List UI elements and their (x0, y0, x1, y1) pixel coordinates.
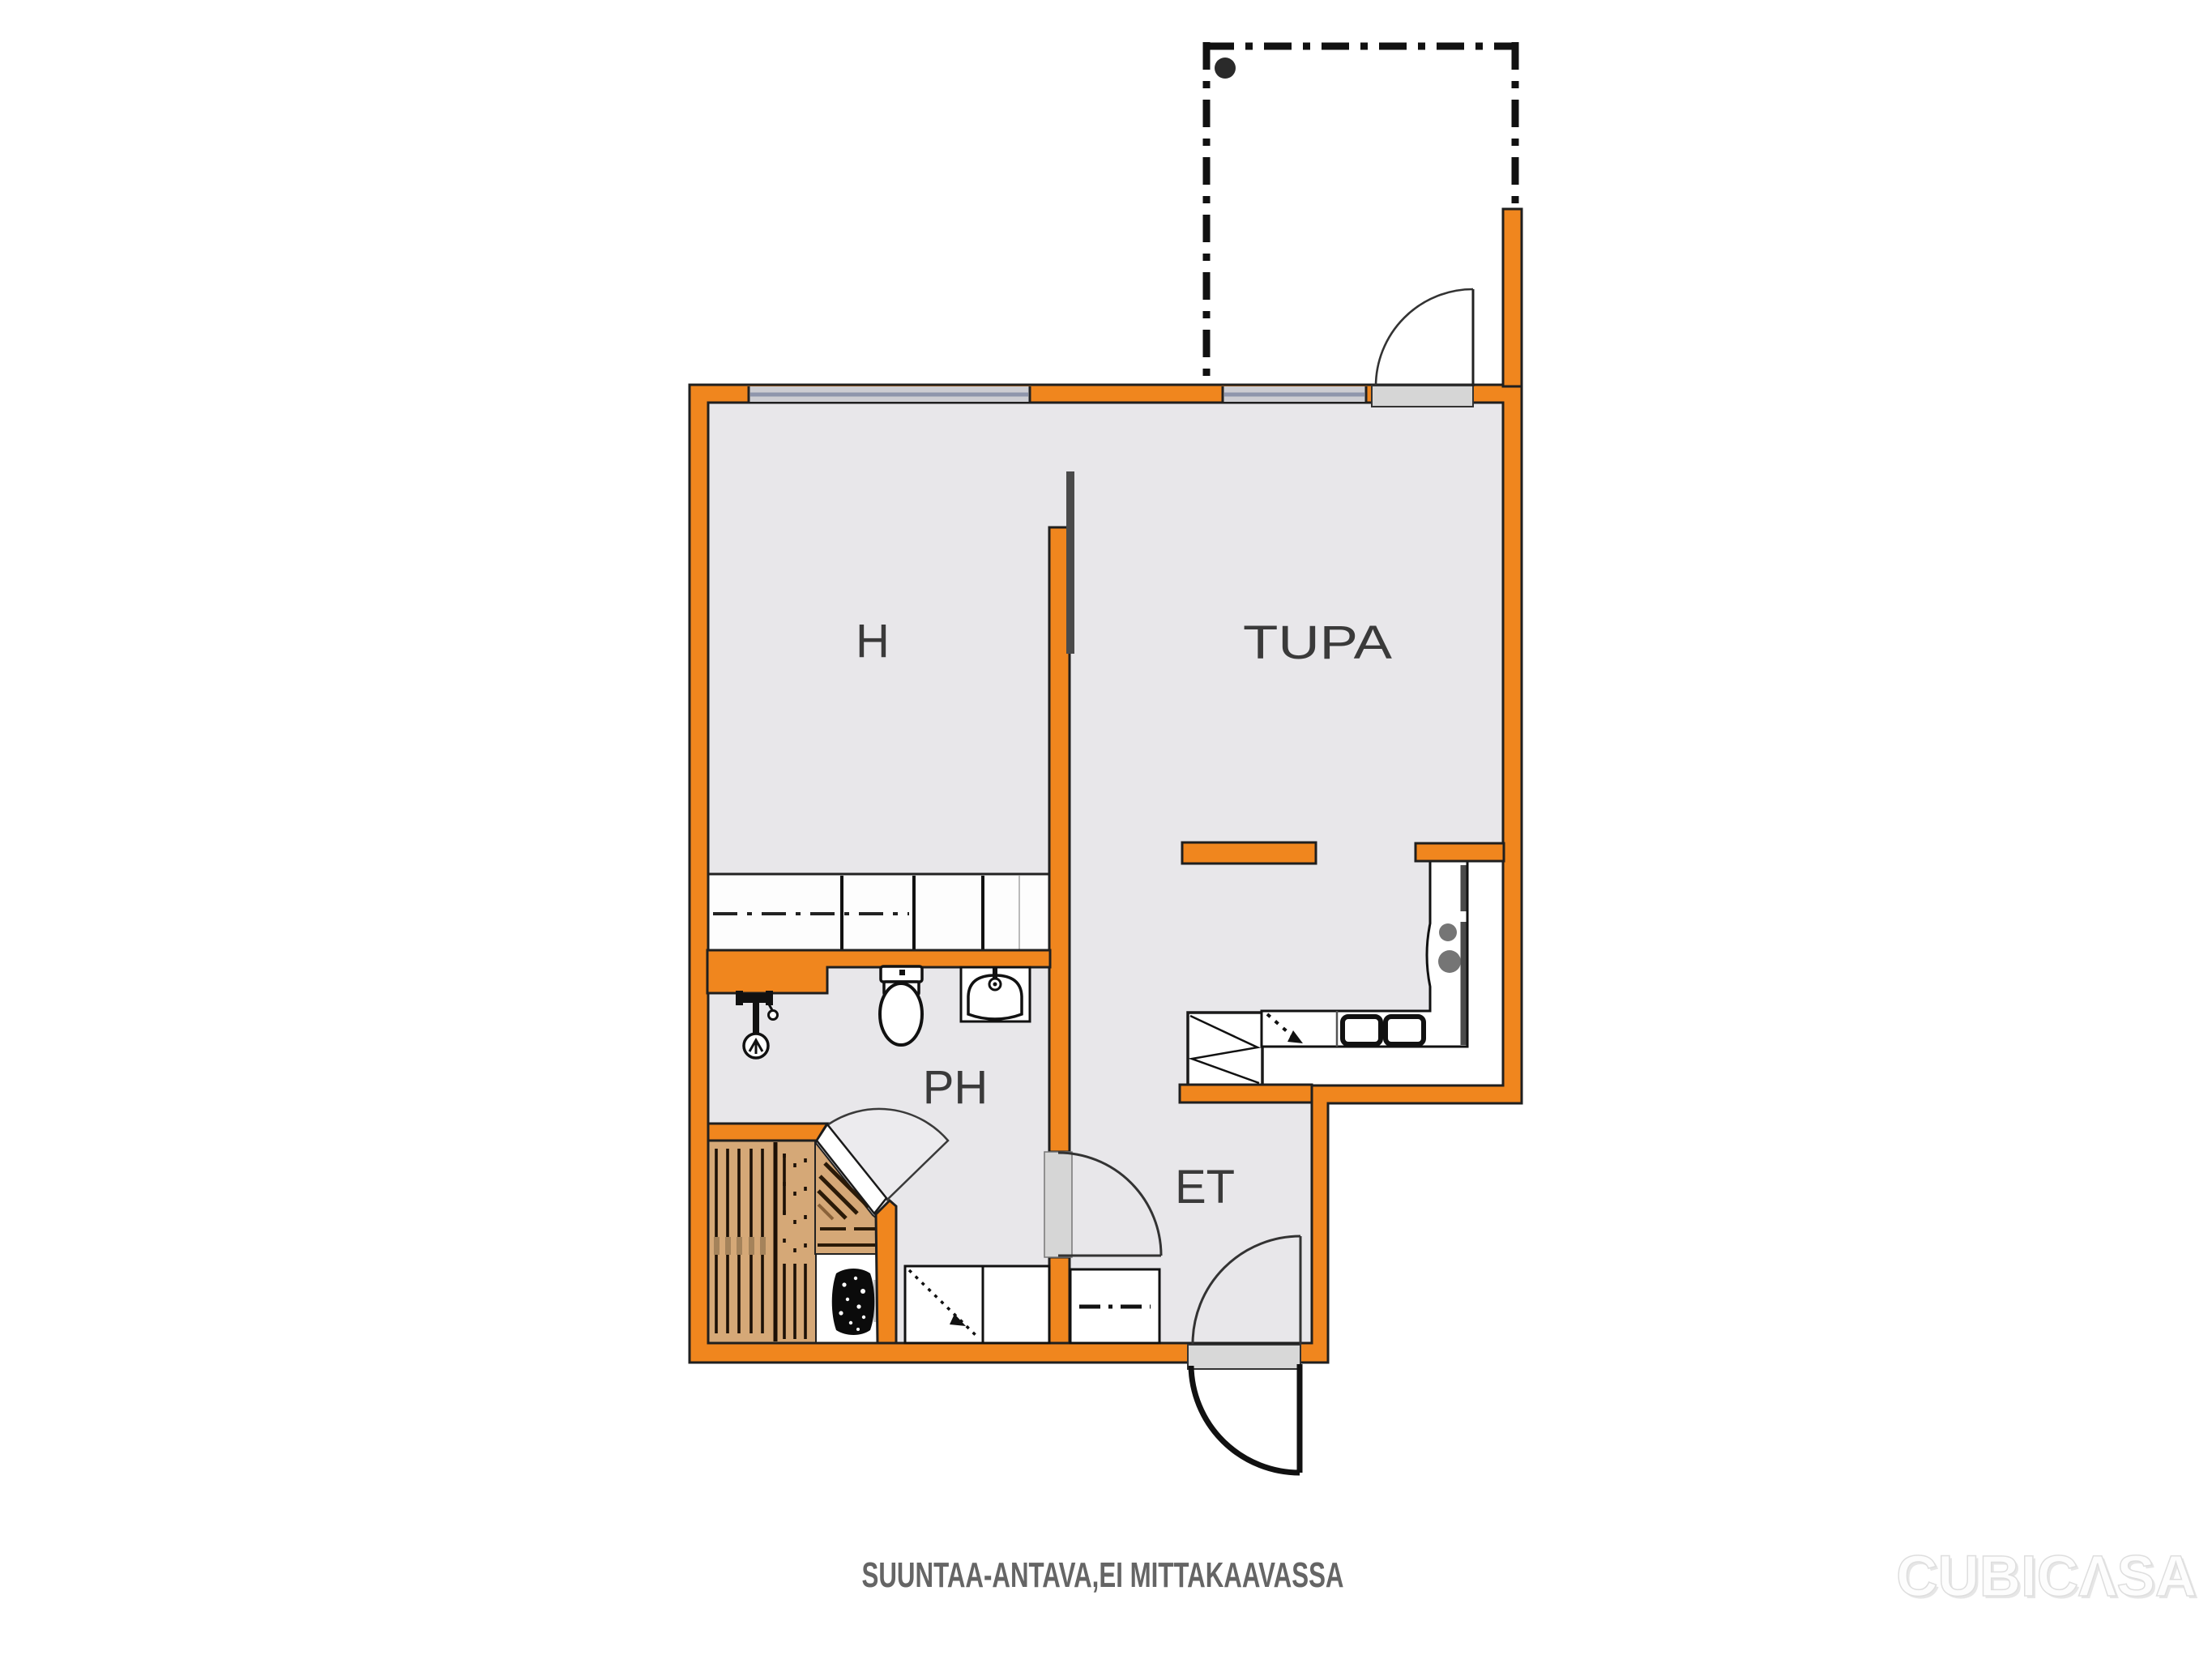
svg-text:PH: PH (923, 1061, 989, 1114)
svg-text:ET: ET (1175, 1161, 1235, 1213)
svg-text:TUPA: TUPA (1243, 616, 1392, 669)
svg-text:H: H (856, 615, 890, 667)
svg-text:CUBICΛSA: CUBICΛSA (1896, 1545, 2197, 1609)
svg-text:SUUNTAA-ANTAVA,EI MITTAKAAVASS: SUUNTAA-ANTAVA,EI MITTAKAAVASSA (862, 1555, 1344, 1595)
